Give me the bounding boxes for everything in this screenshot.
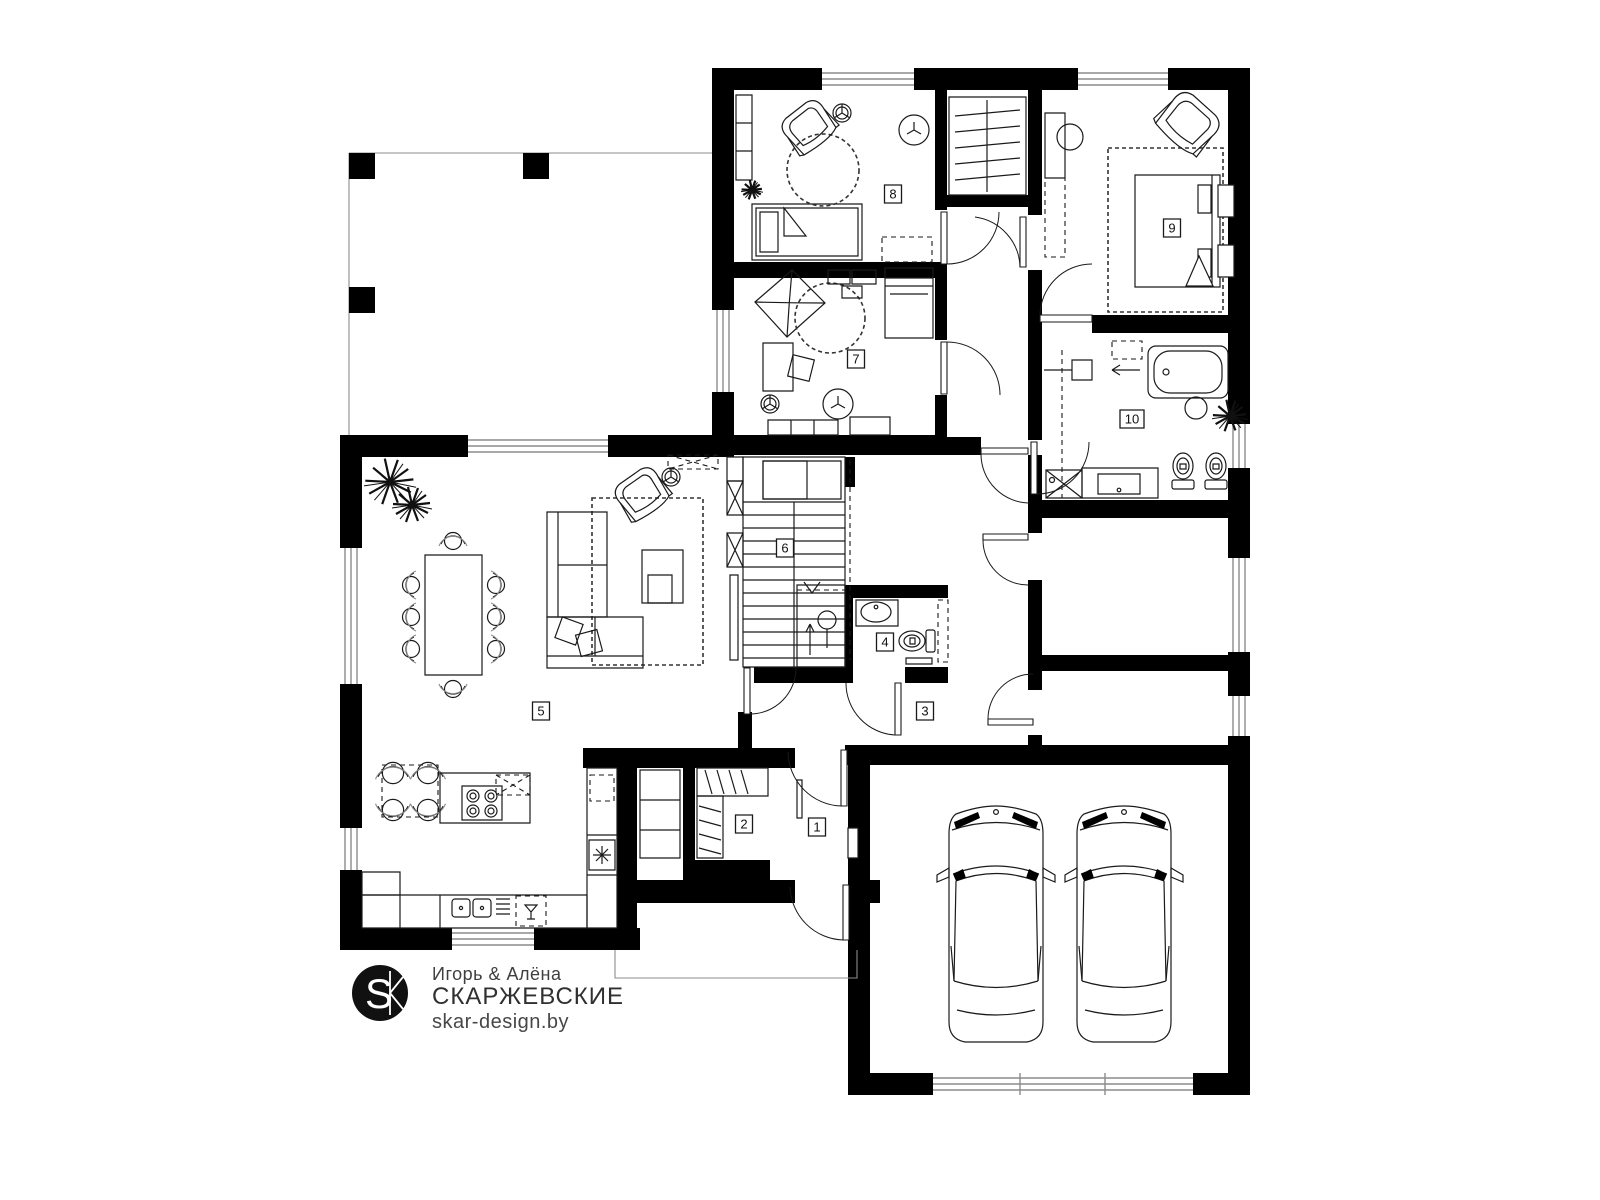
pillow bbox=[576, 630, 603, 657]
wardrobe-racks bbox=[697, 768, 768, 858]
tv-panel bbox=[730, 575, 738, 660]
arrow-icon bbox=[1112, 365, 1140, 375]
stair-vestibule bbox=[797, 585, 845, 667]
garage-door bbox=[933, 1073, 1193, 1095]
tall-kitchen-column bbox=[587, 768, 617, 928]
door bbox=[941, 342, 1000, 395]
toilet bbox=[1172, 453, 1194, 489]
room-label: 1 bbox=[813, 820, 820, 835]
stool bbox=[761, 395, 779, 413]
bathroom-fixtures bbox=[1044, 341, 1248, 498]
window bbox=[1228, 558, 1250, 652]
porch-outline bbox=[615, 950, 857, 978]
pillow bbox=[1198, 185, 1211, 213]
kitchen-table bbox=[376, 762, 446, 820]
drying-rack bbox=[496, 899, 510, 914]
up-arrow bbox=[806, 624, 814, 655]
room-9-furniture bbox=[1045, 86, 1234, 312]
window bbox=[1228, 696, 1250, 736]
car bbox=[937, 806, 1055, 1042]
future-desk bbox=[882, 237, 932, 262]
room-7-furniture bbox=[755, 268, 933, 435]
cabinet bbox=[640, 770, 680, 858]
door bbox=[941, 212, 999, 264]
kitchen bbox=[362, 762, 617, 928]
kitchen-island bbox=[440, 773, 530, 823]
shower-drain bbox=[1050, 478, 1055, 483]
stair-direction-arrow bbox=[804, 582, 820, 593]
blanket-fold bbox=[1186, 256, 1213, 286]
window bbox=[712, 310, 734, 392]
blanket-fold bbox=[784, 208, 806, 236]
wc-fixtures bbox=[856, 600, 935, 664]
room-label: 2 bbox=[740, 817, 747, 832]
lamp bbox=[1057, 124, 1083, 150]
pillow bbox=[760, 212, 778, 252]
storage-boxes bbox=[768, 417, 890, 435]
electrical-panel bbox=[848, 828, 858, 858]
plant-icon bbox=[392, 487, 432, 522]
terrace-pillar bbox=[349, 287, 375, 313]
svg-text:S: S bbox=[365, 970, 393, 1017]
staircase bbox=[727, 457, 850, 667]
ceiling-fan-icon bbox=[823, 389, 853, 419]
plant-icon bbox=[364, 459, 416, 505]
window bbox=[340, 548, 362, 684]
mirror bbox=[797, 780, 802, 818]
bed-single bbox=[885, 268, 933, 338]
room-label: 5 bbox=[537, 704, 544, 719]
kitchen-counter bbox=[362, 872, 587, 928]
ceiling-fan-icon bbox=[899, 115, 929, 145]
terrace-pillar bbox=[523, 153, 549, 179]
logo-website: skar-design.by bbox=[432, 1011, 624, 1033]
fridge bbox=[589, 840, 615, 870]
floor-plan-page: 12345678910 S Игорь & Алёна СКАРЖЕВСКИЕ … bbox=[0, 0, 1600, 1200]
armchair bbox=[776, 95, 841, 159]
designer-logo: S Игорь & Алёна СКАРЖЕВСКИЕ skar-design.… bbox=[352, 964, 624, 1033]
wardrobe bbox=[1045, 178, 1065, 257]
window bbox=[822, 68, 914, 90]
pillow bbox=[555, 617, 583, 645]
nightstand bbox=[1218, 245, 1234, 277]
door bbox=[983, 534, 1028, 585]
bidet bbox=[1205, 453, 1227, 489]
room-label: 10 bbox=[1125, 412, 1139, 427]
oven bbox=[590, 775, 614, 801]
plant-icon bbox=[741, 180, 763, 199]
logo-surname: СКАРЖЕВСКИЕ bbox=[432, 984, 624, 1011]
logo-monogram-icon: S bbox=[352, 964, 410, 1022]
floor-plan-drawing: 12345678910 bbox=[0, 0, 1600, 1200]
room-label: 3 bbox=[921, 704, 928, 719]
terrace bbox=[349, 153, 712, 435]
snowflake-icon bbox=[593, 846, 611, 864]
dining-table bbox=[403, 533, 505, 698]
window bbox=[340, 828, 362, 870]
garage bbox=[933, 806, 1193, 1095]
room-label: 6 bbox=[781, 541, 788, 556]
window bbox=[468, 435, 608, 457]
door bbox=[975, 217, 1026, 267]
armchair bbox=[1151, 86, 1226, 160]
kitchen-sink bbox=[452, 899, 510, 917]
entrance-door bbox=[790, 885, 849, 940]
sofa bbox=[547, 512, 643, 668]
vanity bbox=[1046, 468, 1158, 498]
car bbox=[1065, 806, 1183, 1042]
hall-closet bbox=[949, 97, 1026, 195]
desk-chair bbox=[788, 355, 815, 382]
armchair bbox=[610, 462, 675, 525]
door bbox=[846, 683, 901, 735]
window bbox=[1228, 424, 1250, 468]
closet-room-2 bbox=[640, 768, 768, 858]
pocket-door bbox=[938, 600, 948, 662]
towel-rack bbox=[1112, 341, 1142, 359]
logo-names: Игорь & Алёна bbox=[432, 964, 624, 984]
glass-icon bbox=[525, 905, 537, 919]
washing-machine bbox=[1072, 360, 1092, 380]
dresser bbox=[1045, 113, 1065, 178]
desk bbox=[763, 343, 793, 391]
bed-single bbox=[752, 204, 862, 260]
room-label: 9 bbox=[1168, 221, 1175, 236]
play-tent bbox=[755, 270, 825, 337]
bathtub bbox=[1148, 346, 1228, 398]
stool bbox=[662, 468, 680, 486]
dishwasher bbox=[516, 896, 546, 926]
room-8-furniture bbox=[736, 95, 932, 262]
coffee-table bbox=[642, 550, 683, 603]
room-label: 4 bbox=[881, 635, 888, 650]
room-label: 8 bbox=[889, 187, 896, 202]
living-dining-furniture bbox=[364, 455, 718, 698]
window bbox=[1078, 68, 1168, 90]
door bbox=[1040, 264, 1092, 322]
wc-shelf bbox=[906, 658, 932, 664]
nightstand bbox=[1218, 185, 1234, 217]
terrace-pillar bbox=[349, 153, 375, 179]
round-rug bbox=[787, 134, 859, 206]
door bbox=[988, 674, 1033, 725]
stool bbox=[1185, 397, 1207, 419]
door bbox=[981, 448, 1030, 503]
window bbox=[452, 928, 534, 950]
toilet bbox=[899, 630, 935, 652]
stool bbox=[833, 104, 851, 122]
console-table bbox=[668, 455, 718, 469]
doors bbox=[744, 212, 1092, 940]
round-rug bbox=[795, 283, 865, 353]
room-label: 7 bbox=[852, 352, 859, 367]
wardrobe bbox=[736, 95, 752, 180]
